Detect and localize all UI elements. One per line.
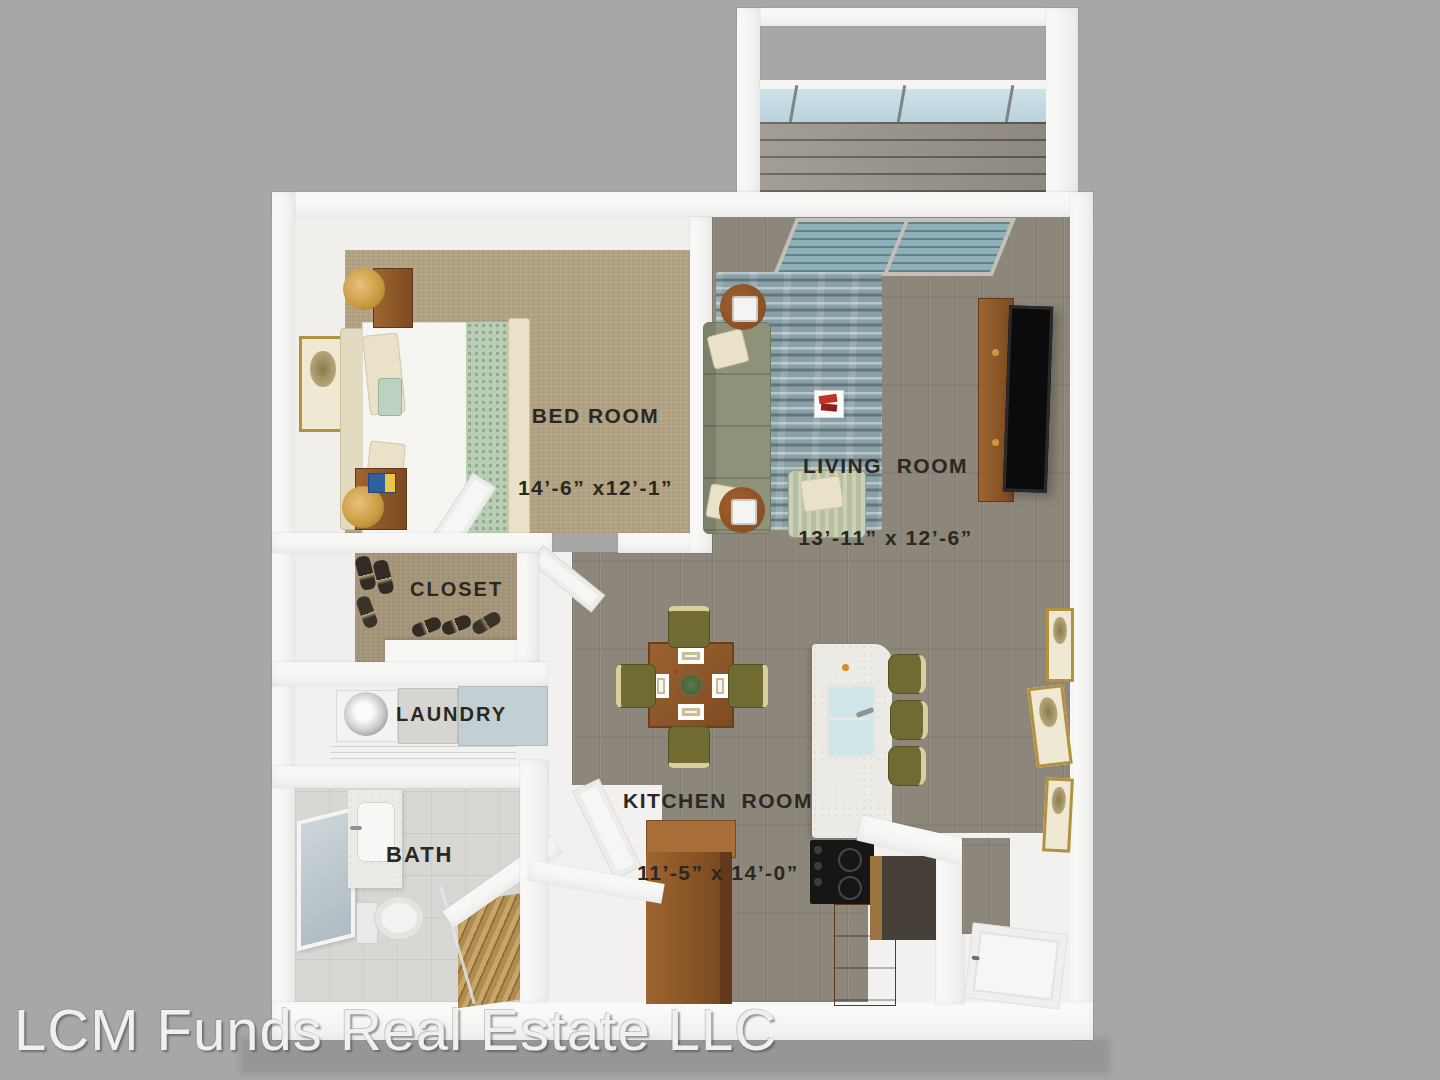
kitchen-label: KITCHEN ROOM 11’-5” x 14’-0” [598,753,838,921]
watermark-text: LCM Funds Real Estate LLC [14,996,777,1063]
sliding-glass-door [773,218,1016,276]
sink-divider [826,717,870,720]
island-sink [826,684,876,758]
entry-wood-strip [962,838,1010,934]
entry-alcove-side-wall [936,852,964,1004]
placemat [678,648,704,664]
table-lamp-square [732,296,758,322]
frame-motif [1053,617,1066,644]
vanity-faucet [350,826,362,830]
bedroom-label: BED ROOM 14’-6” x12’-1” [468,368,723,536]
closet-label: CLOSET [410,578,503,601]
balcony-right-wall [1046,8,1078,192]
bath-label: BATH [386,842,453,868]
bar-stool [888,746,926,786]
closet-shelf [385,640,517,662]
tray-red-book [821,403,838,412]
railing-post [1005,85,1015,123]
entry-door [964,922,1069,1009]
wall-frame [1046,608,1074,682]
living-room-label: LIVING ROOM 13’-11” x 12’-6” [758,418,1013,586]
living-room-dims: 13’-11” x 12’-6” [758,526,1013,550]
frame-motif [1038,697,1059,729]
table-lamp-square [731,499,757,525]
balcony-glass-railing [760,89,1046,124]
cooktop-burner [838,876,862,900]
dining-table [648,642,734,728]
side-table-top [720,284,766,330]
bath-vanity [348,790,402,888]
bath-mirror [297,807,355,951]
floorplan-canvas: BED ROOM 14’-6” x12’-1” CLOSET LAUNDRY B… [0,0,1440,1080]
bed-accent-pillow [378,378,402,416]
dining-chair-top [668,606,710,648]
glass-door-frame-divider [884,222,908,272]
petal [674,670,678,674]
bedroom-dims: 14’-6” x12’-1” [468,476,723,500]
balcony-left-wall [737,8,760,192]
dining-chair-right [728,664,768,708]
laundry-floor-grate [330,746,516,764]
door-handle [971,956,979,961]
balcony-top-wall [737,8,1078,26]
closet-right-wall [517,553,539,662]
bedside-book [368,473,396,493]
petal [706,698,710,702]
bedroom-bottom-wall-left [272,533,552,553]
outer-wall-top [272,192,1093,217]
wall-frame [1042,777,1074,852]
dining-chair-left [616,664,656,708]
kitchen-name: KITCHEN ROOM [598,789,838,813]
cooktop-burner [838,848,862,872]
art-motif [310,351,335,387]
railing-post [897,85,907,123]
bedroom-name: BED ROOM [468,404,723,428]
living-room-name: LIVING ROOM [758,454,1013,478]
washer-door [344,692,388,736]
laundry-bottom-wall [272,766,548,788]
closet-bottom-wall [272,662,548,686]
railing-post [789,85,799,123]
laundry-label: LAUNDRY [396,703,507,726]
fruit [842,664,849,671]
placemat [678,704,704,720]
table-lamp [343,268,385,310]
centerpiece-plant [681,675,701,695]
console-knob [992,349,999,356]
bar-stool [890,700,928,740]
kitchen-dims: 11’-5” x 14’-0” [598,861,838,885]
toilet-bowl [374,896,424,940]
rug-tray [814,390,844,418]
balcony-deck [760,122,1046,192]
placemat [712,674,728,698]
bar-stool [888,654,926,694]
outer-wall-left [272,192,295,1040]
frame-motif [1051,787,1066,815]
